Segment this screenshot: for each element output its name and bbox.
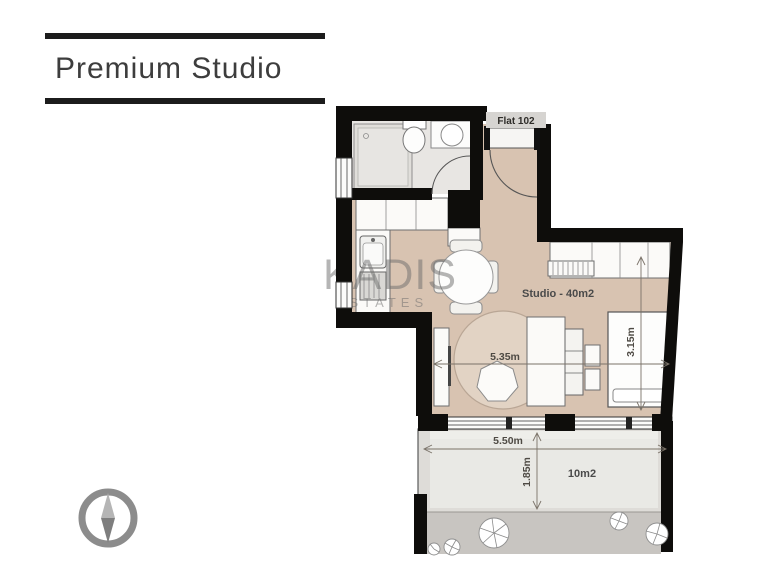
floor-plan: KADIS ESTATES	[0, 0, 768, 568]
bathroom-sink	[431, 121, 471, 148]
bed	[608, 312, 671, 407]
plant	[610, 512, 628, 530]
balcony-top-band	[430, 431, 658, 439]
plant	[444, 539, 460, 555]
studio-label: Studio - 40m2	[522, 288, 594, 300]
window-handle	[626, 417, 632, 429]
balcony-inner-floor	[430, 436, 658, 508]
radiator	[548, 261, 594, 276]
toilet	[403, 120, 426, 153]
dim-bed-depth-label: 3.15m	[625, 327, 637, 357]
window	[336, 158, 352, 198]
tv-bench	[434, 328, 451, 406]
dim-balcony-width-label: 5.50m	[493, 435, 523, 447]
dim-living-width-label: 5.35m	[490, 351, 520, 363]
plant	[428, 543, 440, 555]
window-handle	[506, 417, 512, 429]
screenshot-root: Premium Studio	[0, 0, 768, 568]
entrance-label: Flat 102	[497, 116, 535, 127]
plant	[646, 523, 668, 545]
pillow	[613, 389, 666, 402]
sofa	[527, 317, 583, 406]
plant	[479, 518, 509, 548]
window	[336, 282, 352, 308]
dim-balcony-depth-label: 1.85m	[521, 457, 533, 487]
balcony-area-label: 10m2	[568, 468, 596, 480]
kitchen-counter-top	[356, 198, 448, 230]
shower	[354, 124, 412, 190]
